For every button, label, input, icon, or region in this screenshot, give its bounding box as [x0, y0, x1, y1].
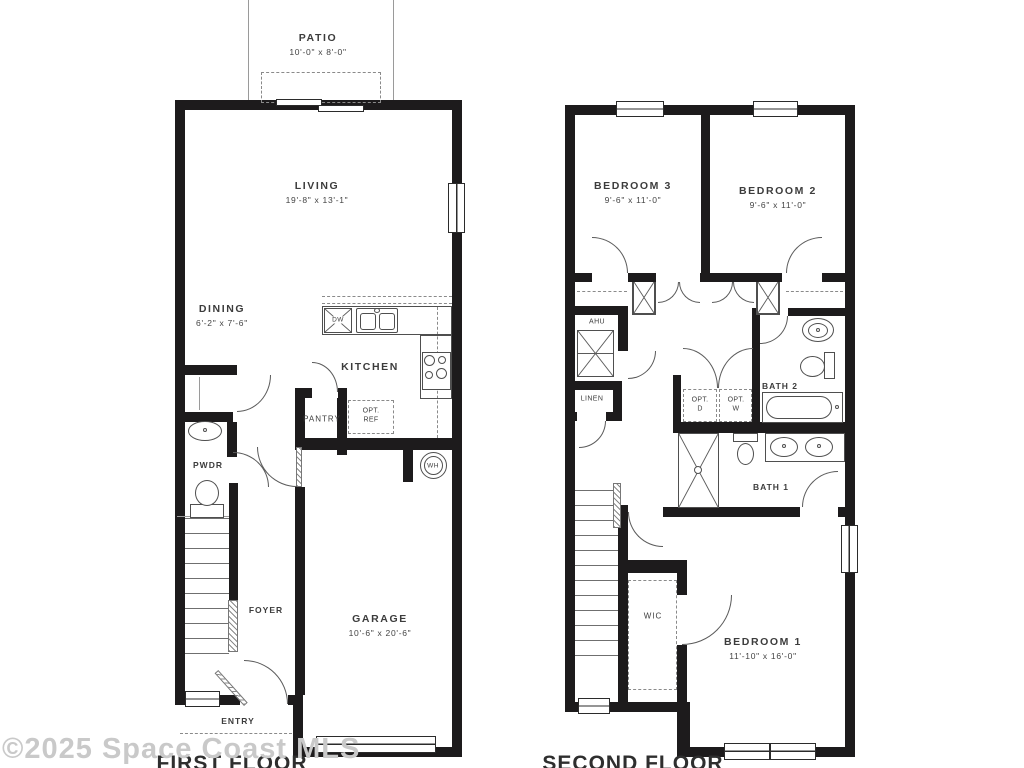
wall-segment [606, 412, 622, 421]
upper-cabinet-dashed [322, 296, 452, 297]
room-dims-living: 19'-8" x 13'-1" [286, 195, 349, 205]
window [578, 698, 610, 714]
wall-segment [673, 375, 681, 423]
room-label-pantry: PANTRY [303, 415, 341, 424]
room-label-bedroom2: BEDROOM 2 [739, 185, 817, 197]
floor-plan-canvas: PATIO 10'-0" x 8'-0" PANTRY WH [0, 0, 1024, 768]
dishwasher-label: DW [331, 317, 345, 324]
wall-segment [295, 438, 462, 450]
upper-cabinet-dashed [322, 303, 452, 304]
stairs-second-floor [575, 490, 618, 656]
stair-rail [228, 600, 238, 652]
sink-basin-icon [360, 313, 376, 330]
wall-segment [663, 507, 800, 517]
window [616, 101, 664, 117]
wall-segment [673, 422, 855, 433]
room-label-linen: LINEN [581, 396, 604, 403]
faucet-dot-icon [374, 308, 380, 313]
room-dims-garage: 10'-6" x 20'-6" [349, 628, 412, 638]
burner-icon [424, 355, 435, 366]
room-label-living: LIVING [295, 180, 340, 192]
shower-drain-icon [694, 466, 702, 474]
room-dims-patio: 10'-0" x 8'-0" [289, 47, 346, 57]
opt-ref-label: OPT. REF [363, 407, 380, 425]
room-label-bath2: BATH 2 [762, 381, 798, 391]
room-label-bath1: BATH 1 [753, 482, 789, 492]
wall-segment [752, 348, 760, 422]
wall-segment [618, 560, 687, 573]
faucet-dot-icon [817, 444, 821, 448]
patio-wall-line [248, 0, 249, 102]
wall-segment [822, 273, 845, 282]
sliding-door-pane [318, 105, 364, 112]
wall-segment [628, 273, 656, 282]
room-label-wic: WIC [644, 612, 663, 621]
room-label-pwdr: PWDR [193, 460, 223, 470]
wall-segment [677, 645, 687, 702]
toilet-bowl-icon [737, 443, 754, 465]
patio-wall-line [393, 0, 394, 102]
stairs-first-floor [185, 518, 229, 654]
stair-wall [618, 505, 628, 702]
room-dims-dining: 6'-2" x 7'-6" [196, 318, 248, 328]
faucet-dot-icon [782, 444, 786, 448]
closet-bedroom3 [632, 282, 656, 315]
window [448, 183, 465, 233]
mls-watermark: ©2025 Space Coast MLS [2, 733, 360, 766]
window [753, 101, 798, 117]
room-label-kitchen: KITCHEN [341, 361, 399, 373]
closet-rod-line [199, 377, 200, 410]
burner-icon [436, 368, 447, 379]
toilet-tank-icon [824, 352, 835, 379]
wall-segment [838, 507, 845, 517]
closet-bedroom2 [756, 282, 780, 315]
bathtub-inner-icon [766, 396, 832, 419]
room-label-garage: GARAGE [352, 613, 408, 625]
room-label-bedroom3: BEDROOM 3 [594, 180, 672, 192]
wall-segment [338, 388, 347, 398]
dashed-line [786, 291, 843, 292]
wall-segment [618, 306, 628, 351]
wall-segment [700, 273, 782, 282]
room-label-bedroom1: BEDROOM 1 [724, 636, 802, 648]
opt-ref-line2: REF [363, 416, 380, 425]
faucet-dot-icon [835, 405, 839, 409]
sliding-door-pane [276, 99, 322, 106]
wall-segment [175, 365, 237, 375]
opt-washer-label: OPT. W [728, 396, 745, 414]
window [770, 743, 816, 760]
opt-dryer-line2: D [692, 405, 709, 414]
window [841, 525, 858, 573]
window [724, 743, 770, 760]
room-label-ahu: AHU [589, 319, 605, 326]
faucet-dot-icon [203, 428, 207, 432]
caption-second-floor: SECOND FLOOR [542, 752, 723, 768]
room-label-entry: ENTRY [221, 716, 255, 726]
wall-segment [565, 412, 577, 421]
opt-ref-line1: OPT. [363, 407, 380, 416]
room-label-foyer: FOYER [249, 605, 283, 615]
window [185, 691, 220, 707]
wall-segment [677, 573, 687, 595]
room-dims-bedroom1: 11'-10" x 16'-0" [729, 651, 797, 661]
burner-icon [438, 356, 446, 364]
wall-segment [788, 308, 845, 316]
faucet-dot-icon [816, 328, 820, 332]
wall-segment [295, 487, 305, 695]
wall-segment [701, 110, 710, 273]
room-label-patio: PATIO [299, 32, 338, 44]
toilet-bowl-icon [195, 480, 219, 506]
room-dims-bedroom3: 9'-6" x 11'-0" [605, 195, 662, 205]
toilet-bowl-icon [800, 356, 825, 377]
wall-segment [403, 450, 413, 482]
toilet-tank-icon [733, 433, 758, 442]
opt-washer-line2: W [728, 405, 745, 414]
wall-segment [565, 273, 592, 282]
water-heater-label: WH [427, 463, 439, 470]
sink-basin-icon [379, 313, 395, 330]
wall-segment [677, 702, 690, 757]
opt-dryer-line1: OPT. [692, 396, 709, 405]
room-label-dining: DINING [199, 303, 245, 315]
burner-icon [425, 371, 433, 379]
stair-rail [613, 483, 621, 528]
wic-shelving-outline [628, 580, 677, 690]
toilet-tank-icon [190, 504, 224, 518]
room-dims-bedroom2: 9'-6" x 11'-0" [750, 200, 807, 210]
wall-segment [305, 388, 312, 398]
opt-washer-line1: OPT. [728, 396, 745, 405]
opt-dryer-label: OPT. D [692, 396, 709, 414]
dashed-line [577, 291, 627, 292]
ahu-unit-icon [577, 330, 614, 377]
